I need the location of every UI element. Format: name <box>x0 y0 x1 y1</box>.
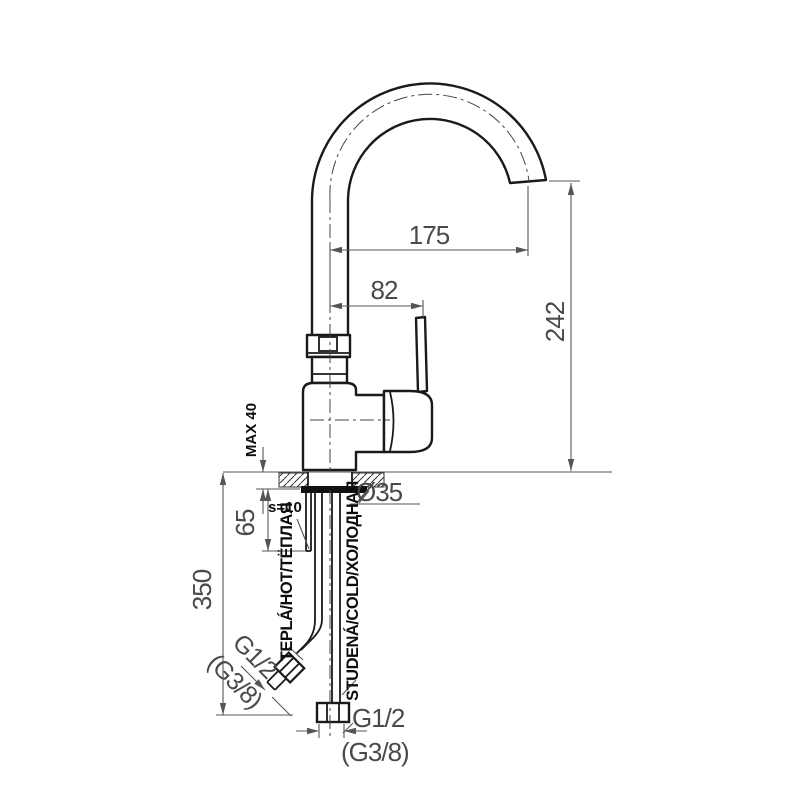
dim-65-value: 65 <box>230 509 260 536</box>
cold-line-label: STUDENÁ/COLD/ХОЛОДНАЯ <box>343 481 362 701</box>
bottom-thread-callout: G1/2 (G3/8) <box>296 703 409 767</box>
lever-handle <box>416 317 427 392</box>
dim-242-value: 242 <box>540 301 570 342</box>
faucet-technical-drawing: 175 82 242 MAX 40 Ø35 s=10 65 <box>0 0 798 798</box>
dim-max40-value: MAX 40 <box>243 403 260 457</box>
spout-gooseneck <box>312 83 546 340</box>
bottom-thread-alt: (G3/8) <box>341 737 409 767</box>
dim-82-value: 82 <box>371 275 398 305</box>
dim-spout-height: 242 <box>540 181 580 471</box>
countertop-hatch-left <box>279 473 308 487</box>
bottom-thread-primary: G1/2 <box>352 703 405 733</box>
faucet-body <box>303 383 384 470</box>
dim-spout-reach: 175 <box>330 186 528 312</box>
warm-line-label: TEPLÁ/HOT/ТЁПЛАЯ <box>277 503 296 661</box>
cold-hose-fitting-nut <box>317 703 349 722</box>
dim-350-value: 350 <box>187 569 217 610</box>
countertop-section <box>223 472 612 487</box>
dim-175-value: 175 <box>409 220 450 250</box>
drawing-canvas: 175 82 242 MAX 40 Ø35 s=10 65 <box>0 0 798 798</box>
dim-max-thickness: MAX 40 <box>243 403 300 514</box>
dim-dia35-value: Ø35 <box>356 477 403 507</box>
